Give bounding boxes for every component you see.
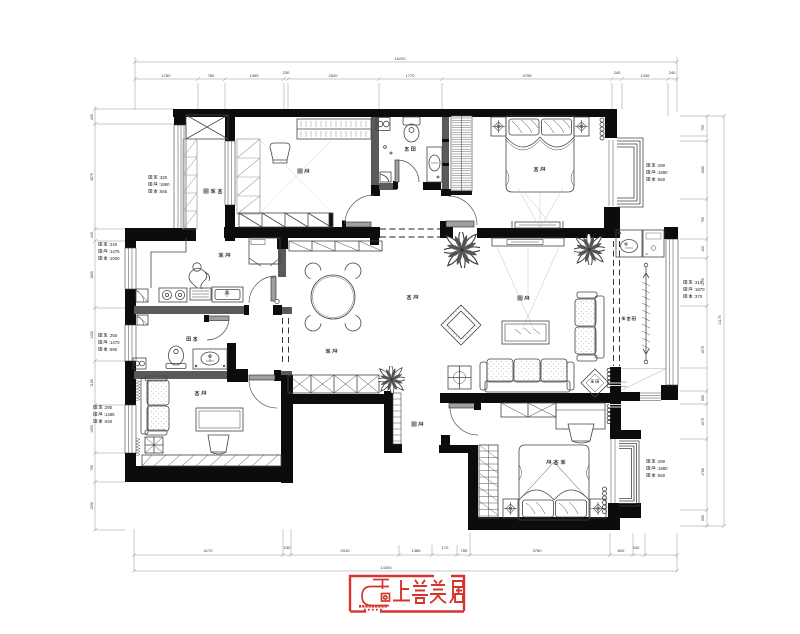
svg-text::1470: :1470 xyxy=(109,340,120,345)
svg-text:14300: 14300 xyxy=(380,565,392,570)
svg-text:1495: 1495 xyxy=(250,73,260,78)
svg-text::240: :240 xyxy=(109,242,118,247)
svg-text:120: 120 xyxy=(701,246,705,252)
svg-text::1890: :1890 xyxy=(657,170,668,175)
svg-text::290: :290 xyxy=(657,459,666,464)
svg-text:3760: 3760 xyxy=(533,548,543,553)
svg-text:795: 795 xyxy=(701,125,705,131)
svg-text:605: 605 xyxy=(701,515,705,521)
svg-text::1870: :1870 xyxy=(694,287,705,292)
svg-text:1800: 1800 xyxy=(90,271,94,279)
svg-text:230: 230 xyxy=(283,70,290,75)
svg-text:230: 230 xyxy=(284,545,291,550)
svg-text:2520: 2520 xyxy=(329,73,339,78)
svg-text::1475: :1475 xyxy=(109,249,120,254)
svg-text:785: 785 xyxy=(461,548,468,553)
svg-text:2910: 2910 xyxy=(341,548,351,553)
svg-text:240: 240 xyxy=(633,545,640,550)
svg-text::1890: :1890 xyxy=(159,182,170,187)
svg-text::1880: :1880 xyxy=(657,466,668,471)
svg-text:795: 795 xyxy=(701,217,705,223)
svg-text::250: :250 xyxy=(109,333,118,338)
svg-text:170: 170 xyxy=(442,545,449,550)
svg-text:1430: 1430 xyxy=(90,331,94,339)
svg-text:1580: 1580 xyxy=(701,166,705,174)
svg-text:1300: 1300 xyxy=(90,425,94,433)
svg-text::1000: :1000 xyxy=(109,256,120,261)
svg-text::550: :550 xyxy=(657,177,666,182)
svg-text:605: 605 xyxy=(701,395,705,401)
svg-text::280: :280 xyxy=(657,163,666,168)
svg-text:16200: 16200 xyxy=(394,56,406,61)
svg-text:1575: 1575 xyxy=(701,346,705,354)
svg-text:1385: 1385 xyxy=(412,548,422,553)
svg-text:240: 240 xyxy=(614,70,621,75)
svg-text:11175: 11175 xyxy=(718,315,722,324)
svg-text:1780: 1780 xyxy=(701,468,705,476)
svg-text:790: 790 xyxy=(90,465,94,471)
svg-text:2875: 2875 xyxy=(90,173,94,181)
svg-text:1780: 1780 xyxy=(162,73,172,78)
svg-text:780: 780 xyxy=(208,73,215,78)
svg-text::310: :310 xyxy=(694,280,703,285)
svg-text:430: 430 xyxy=(90,114,94,120)
svg-text::290: :290 xyxy=(104,405,113,410)
svg-text::320: :320 xyxy=(159,175,168,180)
svg-text::940: :940 xyxy=(104,419,113,424)
svg-text:240: 240 xyxy=(90,232,94,238)
svg-text:1770: 1770 xyxy=(406,73,416,78)
svg-text::990: :990 xyxy=(109,347,118,352)
svg-text::550: :550 xyxy=(657,473,666,478)
svg-text:1075: 1075 xyxy=(701,418,705,426)
svg-text:1180: 1180 xyxy=(90,379,94,387)
svg-text:4170: 4170 xyxy=(204,548,214,553)
svg-text:600: 600 xyxy=(618,548,625,553)
svg-text:1336: 1336 xyxy=(641,73,651,78)
svg-text::565: :565 xyxy=(159,189,168,194)
svg-text:4795: 4795 xyxy=(523,73,533,78)
svg-text:1290: 1290 xyxy=(90,502,94,510)
svg-text::370: :370 xyxy=(694,294,703,299)
svg-text:240: 240 xyxy=(669,70,676,75)
svg-text::1485: :1485 xyxy=(104,412,115,417)
